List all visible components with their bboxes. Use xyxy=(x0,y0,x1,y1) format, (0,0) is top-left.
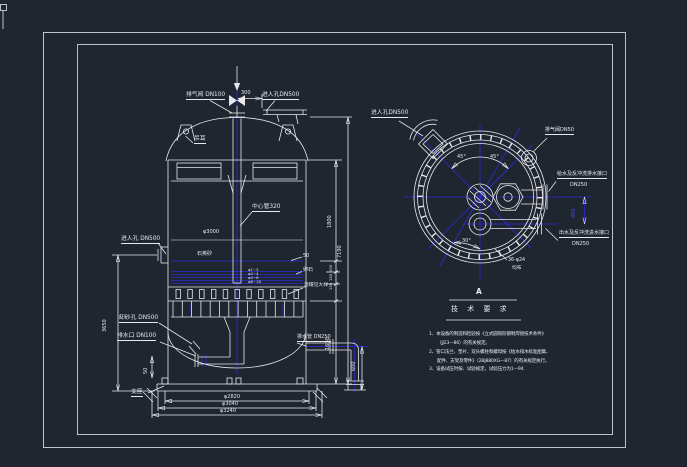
top-manhole-label: 进人孔DN500 xyxy=(262,92,299,100)
tv-angle-right: 45° xyxy=(490,155,499,161)
tv-outlet-label-line1: 出水及反冲洗进水接口 xyxy=(559,231,609,238)
tv-offset-dim: 450 xyxy=(572,208,578,218)
dim-lower-right: 1600 xyxy=(326,337,332,350)
tv-bolt-note-line1: 36-φ24 xyxy=(508,258,525,263)
tv-bolt-note-line2: 均布 xyxy=(512,266,522,271)
dim-overall-height: 7190 xyxy=(338,245,344,258)
lifting-lug-label: 吊耳 xyxy=(194,136,206,144)
dim-left-small: 50 xyxy=(144,368,150,374)
note-line-3: 2、管口法兰、垫片、双头螺柱和螺母按《给水排水标准图集、 xyxy=(429,350,550,355)
lower-manhole-label: 卸砂孔 DN500 xyxy=(119,315,158,323)
dim-bottom-3: φ3240 xyxy=(220,409,236,415)
note-line-1: 1、本设备的制造和检验按《立式圆筒形钢制焊接技术条件》 xyxy=(429,332,546,337)
filter-cap-label: 滤帽见大样 xyxy=(304,283,328,288)
cad-viewport: 排气阀 DN100 进人孔DN500 300 吊耳 中心管320 φ3000 进… xyxy=(0,0,687,467)
dim-freeboard: 50 xyxy=(303,254,309,260)
notes-title: 技 术 要 求 xyxy=(451,306,510,314)
tv-inlet-label-line2: DN250 xyxy=(570,183,587,189)
side-manhole-label: 进人孔 DN500 xyxy=(121,236,160,244)
note-line-4: 配件、支架及零件》（2BJ880XG—87）的有关规定执行。 xyxy=(437,359,549,364)
pebble-label: 卵石 xyxy=(303,268,313,274)
tv-view-label: A xyxy=(476,288,482,296)
dim-left-height: 3650 xyxy=(103,319,109,332)
quartz-sand-label: 石英砂 xyxy=(197,252,212,258)
support-label: 支座 xyxy=(131,389,143,397)
dim-layer-2: 150 xyxy=(329,274,333,281)
dim-top-offset: 300 xyxy=(241,91,251,97)
tv-outlet-label-line2: DN250 xyxy=(572,242,589,248)
dim-layer-3: 150 xyxy=(329,283,333,290)
layer-mark-4: φ8~16 xyxy=(248,280,261,284)
tv-angle-lower: 30° xyxy=(462,239,471,245)
dim-bottom-1: φ2820 xyxy=(224,395,240,401)
center-pipe-label: 中心管320 xyxy=(252,204,280,212)
note-line-5: 3、设备试压时按、试验规定，试验压力为1—94. xyxy=(429,367,525,372)
shell-diameter-label: φ3000 xyxy=(203,230,219,236)
dim-layer-1: 100 xyxy=(329,265,333,272)
tv-manhole-label: 进人孔DN500 xyxy=(371,110,408,118)
tv-angle-left: 45° xyxy=(457,155,466,161)
screen-artifact xyxy=(1,5,7,30)
tv-inlet-label-line1: 给水及反冲洗排水接口 xyxy=(557,172,607,179)
note-line-2: （JJ23—86）的有关规定。 xyxy=(437,341,490,346)
dim-bottom-2: φ3040 xyxy=(222,402,238,408)
vent-valve-label: 排气阀 DN100 xyxy=(186,92,225,100)
dim-upper-right: 1800 xyxy=(328,215,334,228)
top-view-drawing xyxy=(399,120,591,300)
tv-vent-label: 排气阀DN50 xyxy=(545,128,574,135)
dim-skirt-height: 600 xyxy=(352,361,358,371)
drain-label: 排水口 DN100 xyxy=(117,333,156,341)
